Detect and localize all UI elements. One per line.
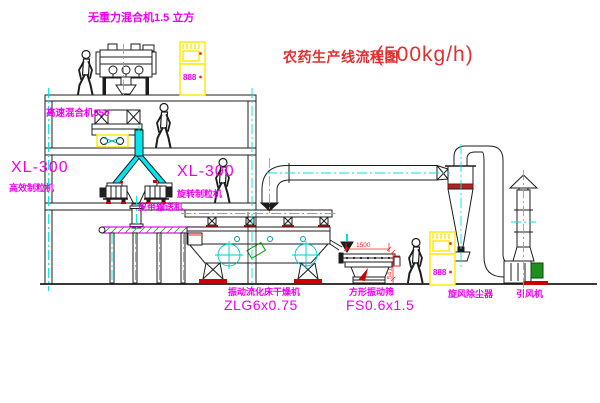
fluid-bed-dryer — [185, 210, 342, 283]
label-screen-model: FS0.6x1.5 — [346, 298, 414, 312]
label-screen-name: 方形振动筛 — [349, 288, 394, 297]
person-figure-ground — [408, 239, 423, 283]
label-granulator-left-model: XL-300 — [11, 160, 69, 176]
control-cabinet-right: 888 — [430, 232, 455, 285]
label-cyclone: 旋风除尘器 — [448, 290, 493, 299]
label-fan: 引风机 — [516, 290, 543, 299]
dimension-screen-height: 541 — [387, 268, 394, 279]
induced-draft-fan — [504, 261, 548, 285]
person-figure-floor2 — [156, 104, 171, 148]
label-granulator-right-model: XL-300 — [177, 164, 235, 180]
person-figure-top-platform — [78, 51, 93, 95]
label-high-speed-mixer: 高速混合机350 — [46, 109, 109, 119]
gravity-free-mixer — [96, 44, 156, 94]
label-dryer-name: 振动流化床干燥机 — [228, 288, 300, 297]
label-belt-conveyor: 皮带输送机 — [138, 203, 183, 212]
label-granulator-right-name: 旋转制粒机 — [177, 190, 222, 199]
label-gravity-mixer: 无重力混合机1.5 立方 — [88, 13, 194, 24]
process-flow-diagram: 1500 541 888 888 — [0, 0, 600, 403]
control-cabinet-top: 888 — [180, 42, 205, 95]
granulator-left — [100, 186, 128, 204]
cabinet-display-top: 888 — [183, 73, 197, 82]
dimension-screen-length: 1500 — [356, 242, 371, 249]
label-granulator-left-name: 高效制粒机 — [9, 184, 54, 193]
label-dryer-model: ZLG6x0.75 — [224, 298, 298, 312]
cabinet-display-right: 888 — [433, 268, 447, 277]
exhaust-duct — [261, 163, 448, 211]
diagram-title-capacity: (500kg/h) — [376, 44, 474, 65]
